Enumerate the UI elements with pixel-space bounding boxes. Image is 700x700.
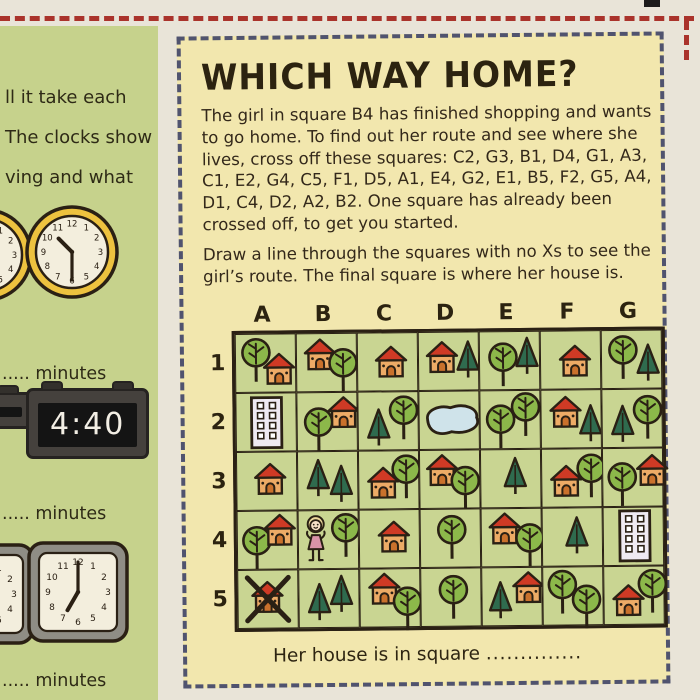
house-icon	[373, 345, 409, 379]
svg-text:2: 2	[7, 575, 13, 585]
girl-icon	[303, 515, 330, 563]
svg-text:7: 7	[60, 614, 66, 624]
svg-text:5: 5	[84, 273, 89, 283]
pond-icon	[419, 401, 483, 440]
grid-row-headers: 12345	[210, 334, 228, 629]
grid-cell-A5[interactable]	[237, 570, 299, 630]
svg-text:10: 10	[46, 573, 58, 583]
svg-text:5: 5	[0, 616, 2, 626]
grid-cell-D3[interactable]	[419, 450, 481, 510]
svg-text:2: 2	[101, 573, 107, 583]
pine-icon	[635, 343, 661, 383]
row-header-5: 5	[212, 570, 228, 629]
round-tree-icon	[569, 585, 603, 631]
col-header-F: F	[536, 300, 597, 329]
grid-cell-B2[interactable]	[296, 392, 358, 452]
grid-cell-G2[interactable]	[601, 389, 663, 449]
grid-cell-C5[interactable]	[359, 568, 421, 628]
round-tree-icon	[326, 348, 360, 394]
clock-button	[41, 381, 63, 389]
left-page-text: ll it take each The clocks show ving and…	[5, 78, 152, 198]
svg-text:4: 4	[101, 603, 107, 613]
house-icon	[252, 462, 288, 496]
svg-text:2: 2	[94, 234, 99, 244]
puzzle-grid: ABCDEFG	[231, 299, 664, 632]
puzzle-title: WHICH WAY HOME?	[201, 52, 642, 99]
answer-label: Her house is in square	[273, 644, 480, 667]
fragment-line: The clocks show	[5, 118, 152, 158]
svg-text:4: 4	[8, 265, 13, 275]
grid-cells	[232, 327, 668, 633]
round-tree-icon	[436, 575, 470, 621]
svg-text:7: 7	[55, 273, 60, 283]
col-header-A: A	[231, 303, 292, 332]
grid-cell-A4[interactable]	[237, 511, 299, 571]
round-tree-icon	[635, 569, 669, 615]
grid-cell-D4[interactable]	[420, 509, 482, 569]
grid-cell-E5[interactable]	[481, 567, 543, 627]
clock-button	[112, 381, 134, 389]
left-page: ll it take each The clocks show ving and…	[0, 26, 158, 700]
puzzle-panel: WHICH WAY HOME? The girl in square B4 ha…	[177, 31, 671, 688]
house-icon	[262, 513, 298, 547]
round-tree-icon	[386, 395, 420, 441]
red-dashed-border-corner	[684, 20, 689, 60]
grid-cell-B4[interactable]	[298, 510, 360, 570]
house-icon	[510, 570, 546, 604]
svg-text:9: 9	[41, 248, 46, 258]
house-icon	[634, 453, 670, 487]
svg-text:2: 2	[8, 237, 13, 247]
pine-icon	[502, 456, 528, 496]
house-icon	[261, 352, 297, 386]
grid-cell-F2[interactable]	[540, 390, 602, 450]
digital-clock-screen	[0, 407, 22, 417]
grid-cell-A3[interactable]	[236, 452, 298, 512]
col-header-E: E	[475, 300, 536, 329]
pine-icon	[577, 403, 603, 443]
pine-icon	[328, 464, 354, 504]
col-header-C: C	[353, 301, 414, 330]
svg-text:10: 10	[42, 234, 53, 244]
svg-text:9: 9	[45, 588, 51, 598]
grid-cell-B5[interactable]	[298, 569, 360, 629]
svg-text:12: 12	[67, 220, 78, 230]
col-header-D: D	[414, 301, 475, 330]
svg-text:11: 11	[52, 223, 63, 233]
square-clock: 121234567891011	[26, 540, 130, 648]
svg-text:11: 11	[57, 562, 68, 572]
svg-text:8: 8	[45, 262, 50, 272]
grid-cell-F4[interactable]	[542, 508, 604, 568]
pine-icon	[514, 336, 540, 376]
svg-text:3: 3	[12, 251, 17, 261]
grid-cell-G5[interactable]	[603, 566, 665, 626]
digital-clock: 4:40	[26, 388, 149, 459]
grid-cell-C1[interactable]	[357, 332, 419, 392]
row-header-1: 1	[210, 334, 226, 393]
answer-blank[interactable]: ..............	[486, 643, 583, 665]
puzzle-instructions-2: Draw a line through the squares with no …	[203, 239, 655, 287]
svg-text:6: 6	[75, 618, 81, 628]
house-icon	[325, 395, 361, 429]
svg-text:1: 1	[0, 564, 2, 574]
svg-text:1: 1	[0, 226, 3, 236]
fragment-line: ll it take each	[5, 78, 152, 118]
grid-cell-B3[interactable]	[297, 451, 359, 511]
grid-cell-D5[interactable]	[420, 568, 482, 628]
round-tree-icon	[435, 515, 469, 561]
svg-text:1: 1	[84, 223, 89, 233]
minutes-blank: ..... minutes	[2, 671, 106, 691]
grid-cell-E3[interactable]	[480, 449, 542, 509]
grid-cell-C2[interactable]	[357, 391, 419, 451]
clock-button	[0, 385, 19, 393]
answer-line: Her house is in square ..............	[207, 642, 648, 668]
svg-text:5: 5	[0, 276, 3, 286]
fragment-line: ving and what	[5, 158, 152, 198]
house-icon	[376, 520, 412, 554]
grid-cell-F3[interactable]	[541, 449, 603, 509]
grid-cell-C4[interactable]	[359, 509, 421, 569]
row-header-3: 3	[211, 452, 227, 511]
pine-icon	[328, 574, 354, 614]
svg-text:1: 1	[90, 562, 96, 572]
red-dashed-border	[0, 16, 694, 21]
grid-cell-E2[interactable]	[479, 390, 541, 450]
round-tree-icon	[448, 466, 482, 512]
pine-icon	[564, 516, 590, 556]
grid-cell-E4[interactable]	[481, 508, 543, 568]
grid-cell-G1[interactable]	[601, 330, 663, 390]
grid-cell-D2[interactable]	[418, 391, 480, 451]
grid-cell-C3[interactable]	[358, 450, 420, 510]
grid-cell-F1[interactable]	[540, 331, 602, 391]
row-header-4: 4	[212, 511, 228, 570]
svg-text:3: 3	[105, 588, 111, 598]
svg-text:3: 3	[11, 590, 17, 600]
grid-cell-G3[interactable]	[602, 448, 664, 508]
col-header-B: B	[292, 302, 353, 331]
grid-column-headers: ABCDEFG	[231, 299, 661, 332]
svg-text:5: 5	[90, 614, 96, 624]
row-header-2: 2	[210, 393, 226, 452]
grid-cell-A2[interactable]	[235, 393, 297, 453]
col-header-G: G	[597, 299, 658, 328]
house-icon	[557, 344, 593, 378]
grid-cell-E1[interactable]	[479, 331, 541, 391]
grid-cell-B1[interactable]	[296, 333, 358, 393]
svg-text:4: 4	[94, 262, 99, 272]
minutes-blank: ..... minutes	[2, 504, 106, 524]
building-icon	[249, 396, 284, 450]
cross-icon	[238, 571, 298, 629]
svg-text:4: 4	[7, 605, 13, 615]
round-tree-icon	[508, 392, 542, 438]
puzzle-instructions-1: The girl in square B4 has finished shopp…	[201, 101, 654, 237]
analog-clock-yellow: 121234567891011	[24, 204, 120, 304]
page-corner-mark	[644, 0, 660, 7]
building-icon	[618, 509, 653, 563]
grid-cell-A1[interactable]	[235, 334, 297, 394]
grid-cell-G4[interactable]	[603, 507, 665, 567]
svg-text:8: 8	[49, 603, 55, 613]
grid-cell-F5[interactable]	[542, 567, 604, 627]
digital-clock-time: 4:40	[38, 403, 137, 447]
round-tree-icon	[630, 395, 664, 441]
svg-text:3: 3	[98, 248, 103, 258]
grid-cell-D1[interactable]	[418, 332, 480, 392]
pine-icon	[455, 340, 481, 380]
